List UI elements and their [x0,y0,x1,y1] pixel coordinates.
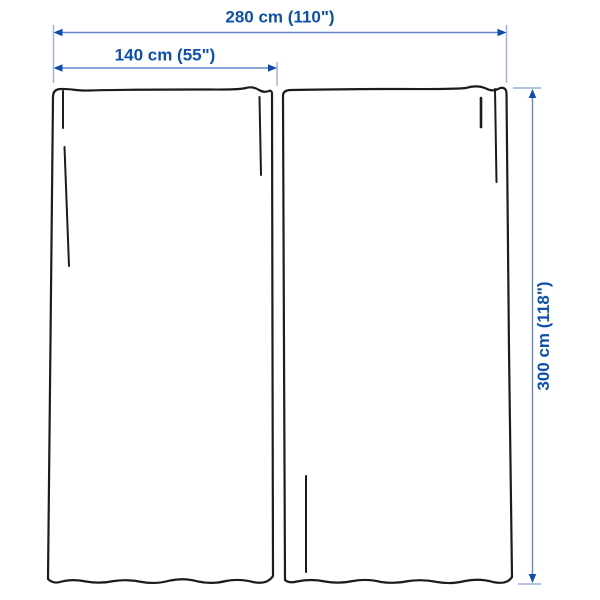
dimension-panel-width: 140 cm (55") [54,46,278,87]
arrow-right-icon [268,64,277,72]
arrow-left-icon [54,64,63,72]
label-total-width: 280 cm (110") [225,8,334,27]
arrow-down-icon [529,574,537,583]
arrow-left-icon [54,29,63,37]
dimension-height: 300 cm (118") [513,88,553,584]
arrow-up-icon [529,89,537,98]
curtain-dimension-illustration: 280 cm (110") 140 cm (55") 300 cm (118") [0,0,600,600]
label-height: 300 cm (118") [534,281,553,390]
label-panel-width: 140 cm (55") [115,46,216,65]
curtain-panel-left [48,87,273,583]
curtain-panel-right [283,86,512,583]
diagram-canvas: 280 cm (110") 140 cm (55") 300 cm (118") [0,0,600,600]
curtain-panels [48,86,512,583]
arrow-right-icon [498,29,507,37]
